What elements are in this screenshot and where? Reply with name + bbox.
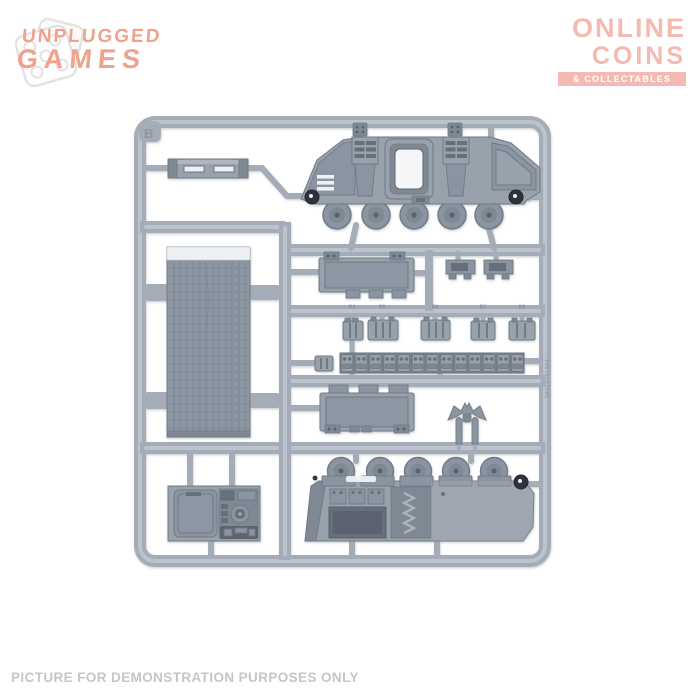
mold-code: 99370101004 bbox=[545, 358, 551, 398]
door-handle bbox=[186, 492, 201, 496]
track-label-r7: R7 bbox=[480, 305, 487, 311]
track-label-r4: R4 bbox=[349, 305, 356, 311]
track-label-r5: R5 bbox=[379, 305, 386, 311]
track-label-r8: R8 bbox=[519, 305, 526, 311]
part-roof-panel bbox=[167, 247, 250, 437]
disclaimer-text: PICTURE FOR DEMONSTRATION PURPOSES ONLY bbox=[11, 670, 359, 685]
hinge bbox=[390, 252, 405, 260]
hatch-opening bbox=[395, 149, 423, 189]
bracket bbox=[446, 260, 475, 279]
hinge bbox=[324, 252, 339, 260]
part-track-run bbox=[315, 353, 524, 373]
track-link-cluster bbox=[421, 317, 450, 340]
single-track-link bbox=[315, 356, 333, 371]
part-interior-console bbox=[168, 486, 260, 541]
model-sprue: B 99370101004 R4 R5 R6 R7 R8 bbox=[0, 0, 700, 700]
vent-slot bbox=[214, 166, 234, 172]
road-wheels-top bbox=[323, 201, 503, 229]
track-link-cluster bbox=[509, 318, 535, 340]
interior-seats bbox=[330, 489, 384, 504]
part-top-hatch bbox=[319, 252, 414, 298]
product-photo: UNPLUGGED GAMES ONLINE COINS & COLLECTAB… bbox=[0, 0, 700, 700]
part-tank-hull-exterior bbox=[301, 123, 540, 229]
frame-letter: B bbox=[144, 126, 153, 141]
track-link-cluster bbox=[471, 318, 495, 340]
track-link-cluster bbox=[368, 317, 398, 340]
part-eagle-ornament bbox=[448, 403, 486, 444]
hinge bbox=[394, 425, 409, 433]
track-label-r6: R6 bbox=[432, 305, 439, 311]
vent-slot bbox=[184, 166, 204, 172]
part-track-link-clusters bbox=[343, 317, 535, 340]
panel-edge-highlight bbox=[167, 247, 250, 260]
part-bottom-hatch bbox=[320, 385, 414, 433]
gloss-highlight bbox=[346, 476, 376, 482]
bracket bbox=[484, 260, 513, 279]
hinge bbox=[325, 425, 340, 433]
part-vent-plate bbox=[168, 159, 248, 178]
part-tank-hull-interior bbox=[305, 458, 534, 542]
part-step-brackets bbox=[446, 260, 513, 279]
track-link-cluster bbox=[343, 318, 363, 340]
